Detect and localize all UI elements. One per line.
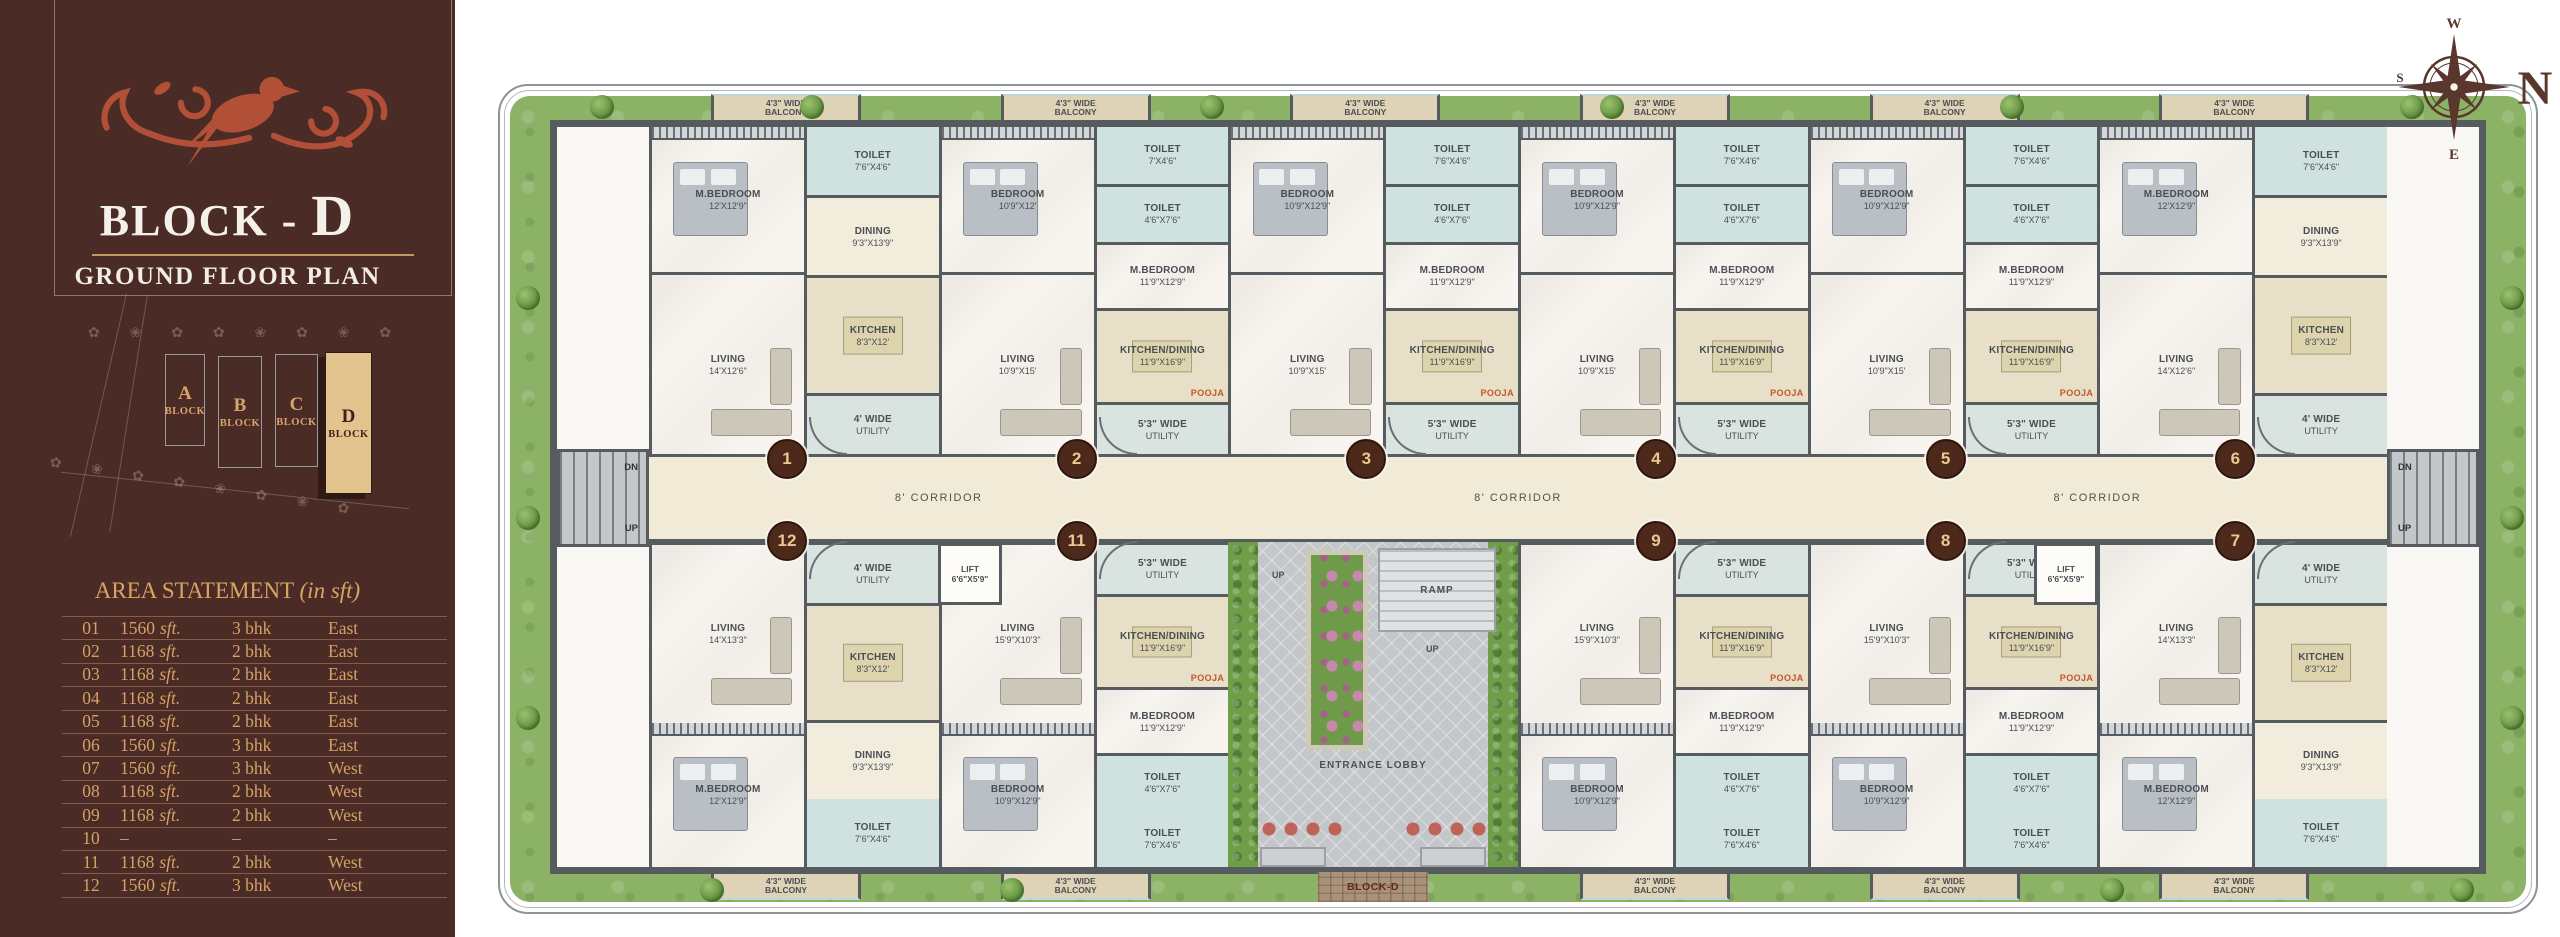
room-name: LIVING: [1580, 623, 1615, 634]
area-row-facing: East: [328, 735, 440, 756]
unit-12-right-col: TOILET7'6"X4'6"DINING9'3"X13'9"KITCHEN8'…: [804, 542, 939, 867]
room-name: M.BEDROOM: [1709, 711, 1774, 722]
unit-12-room-dining: DINING9'3"X13'9": [807, 720, 939, 799]
area-row-area: 1168sft.: [120, 852, 232, 873]
unit-11-room-bedroom: BEDROOM10'9"X12'9": [942, 723, 1094, 867]
room-name: KITCHEN: [850, 325, 896, 336]
room-dims: 11'9"X16'9": [1719, 643, 1764, 653]
room-name: 4' WIDE: [2302, 414, 2340, 425]
unit-9-room-bedroom: BEDROOM10'9"X12'9": [1521, 723, 1673, 867]
area-row-facing: West: [328, 781, 440, 802]
room-dims: 4'6"X7'6": [1724, 215, 1760, 225]
unit-5: BEDROOM10'9"X12'9"LIVING10'9"X15'TOILET7…: [1808, 127, 2098, 457]
lift-left: LIFT 6'6"X5'9": [938, 543, 1002, 605]
room-name: LIVING: [1000, 623, 1035, 634]
area-unit: sft.: [160, 758, 181, 778]
area-row-bhk: 2 bhk: [232, 781, 328, 802]
unit-12-room-bedroom: M.BEDROOM12'X12'9": [652, 723, 804, 867]
room-name: 5'3" WIDE: [1717, 558, 1766, 569]
unit-4-room-kitchen: POOJAKITCHEN/DINING11'9"X16'9": [1676, 308, 1808, 402]
unit-circle-1[interactable]: 1: [767, 439, 807, 479]
unit-circle-5[interactable]: 5: [1926, 439, 1966, 479]
room-name: TOILET: [2013, 828, 2050, 839]
room-dims: 14'X13'3": [2157, 635, 2195, 645]
area-row-bhk: –: [232, 828, 328, 849]
unit-circle-12[interactable]: 12: [767, 521, 807, 561]
area-value: 1168: [120, 664, 154, 684]
unit-circle-4[interactable]: 4: [1636, 439, 1676, 479]
area-value: 1168: [120, 688, 154, 708]
room-name: 5'3" WIDE: [1428, 419, 1477, 430]
unit-6-room-kitchen: KITCHEN8'3"X12': [2255, 275, 2387, 393]
unit-4-room-toilet2: TOILET4'6"X7'6": [1676, 184, 1808, 242]
room-dims: 9'3"X13'9": [2301, 762, 2342, 772]
unit-2-room-bedroom: BEDROOM10'9"X12': [942, 127, 1094, 272]
room-name: BEDROOM: [1860, 784, 1914, 795]
entrance-lobby-label: ENTRANCE LOBBY: [1228, 760, 1518, 771]
room-dims: UTILITY: [2304, 426, 2338, 436]
unit-5-room-bedroom2: M.BEDROOM11'9"X12'9": [1966, 242, 2098, 308]
room-name: LIVING: [1000, 354, 1035, 365]
area-unit: sft.: [159, 805, 180, 825]
unit-circle-11[interactable]: 11: [1057, 521, 1097, 561]
unit-7-room-living: LIVING14'X13'3": [2100, 542, 2252, 723]
sofa-icon: [1000, 678, 1081, 705]
unit-2-room-toilet: TOILET7'X4'6": [1097, 127, 1229, 184]
room-name: TOILET: [1724, 772, 1761, 783]
room-dims: 11'9"X12'9": [2009, 723, 2054, 733]
area-row-area: 1560sft.: [120, 735, 232, 756]
unit-11-room-bedroom2: M.BEDROOM11'9"X12'9": [1097, 687, 1229, 753]
unit-8-left-col: BEDROOM10'9"X12'9"LIVING15'9"X10'3": [1811, 542, 1963, 867]
room-name: KITCHEN: [2298, 652, 2344, 663]
room-dims: 4'6"X7'6": [1434, 215, 1470, 225]
area-row-area: 1168sft.: [120, 711, 232, 732]
room-name: KITCHEN: [850, 652, 896, 663]
unit-circle-8[interactable]: 8: [1926, 521, 1966, 561]
unit-2-room-bedroom2: M.BEDROOM11'9"X12'9": [1097, 242, 1229, 308]
site-block-letter: B: [234, 395, 247, 417]
up-label: UP: [1426, 644, 1439, 654]
shrub-bed-right: [1402, 817, 1488, 841]
area-table: 011560sft.3 bhkEast021168sft.2 bhkEast03…: [62, 616, 447, 898]
room-name: TOILET: [1724, 144, 1761, 155]
unit-6: M.BEDROOM12'X12'9"LIVING14'X12'6"TOILET7…: [2097, 127, 2387, 457]
area-row-bhk: 2 bhk: [232, 641, 328, 662]
room-dims: 10'9"X12'9": [995, 796, 1041, 806]
room-name: TOILET: [1144, 144, 1181, 155]
compass-s-label: S: [2396, 70, 2403, 85]
room-name: TOILET: [1434, 144, 1471, 155]
shrub-bed-left: [1258, 817, 1344, 841]
site-plan: ✿ ❀ ✿ ✿ ❀ ✿ ❀ ✿ ✿ ❀ ✿ ✿ ❀ ✿ ❀ ✿ ABLOCKBB…: [0, 300, 455, 570]
area-row-bhk: 2 bhk: [232, 688, 328, 709]
room-dims: UTILITY: [856, 575, 890, 585]
room-name: M.BEDROOM: [1709, 265, 1774, 276]
area-row-facing: East: [328, 688, 440, 709]
entry-step-right: [1420, 847, 1486, 867]
unit-circle-9[interactable]: 9: [1636, 521, 1676, 561]
area-value: 1168: [120, 711, 154, 731]
room-dims: 10'9"X12'9": [1864, 796, 1910, 806]
room-name: TOILET: [1434, 203, 1471, 214]
area-row-bhk: 3 bhk: [232, 735, 328, 756]
site-block-label: BLOCK: [220, 418, 260, 429]
room-dims: 10'9"X12'9": [1574, 201, 1620, 211]
unit-6-room-living: LIVING14'X12'6": [2100, 272, 2252, 454]
site-block-d[interactable]: DBLOCK: [325, 352, 372, 494]
room-dims: 11'9"X16'9": [2009, 643, 2054, 653]
room-dims: 14'X13'3": [709, 635, 747, 645]
unit-4-right-col: TOILET7'6"X4'6"TOILET4'6"X7'6"M.BEDROOM1…: [1673, 127, 1808, 454]
unit-6-room-toilet: TOILET7'6"X4'6": [2255, 127, 2387, 195]
room-name: TOILET: [1144, 203, 1181, 214]
unit-7-right-col: TOILET7'6"X4'6"DINING9'3"X13'9"KITCHEN8'…: [2252, 542, 2387, 867]
area-row-03: 031168sft.2 bhkEast: [62, 664, 447, 687]
room-dims: 10'9"X15': [1578, 366, 1616, 376]
unit-1-room-bedroom: M.BEDROOM12'X12'9": [652, 127, 804, 272]
unit-9: BEDROOM10'9"X12'9"LIVING15'9"X10'3"TOILE…: [1518, 539, 1808, 867]
room-name: KITCHEN/DINING: [1410, 345, 1495, 356]
site-block-label: BLOCK: [165, 406, 205, 417]
unit-9-left-col: BEDROOM10'9"X12'9"LIVING15'9"X10'3": [1521, 542, 1673, 867]
unit-circle-2[interactable]: 2: [1057, 439, 1097, 479]
area-value: 1168: [120, 852, 154, 872]
room-dims: 7'6"X4'6": [1434, 156, 1470, 166]
room-name: BEDROOM: [1281, 189, 1335, 200]
unit-6-room-dining: DINING9'3"X13'9": [2255, 195, 2387, 275]
unit-7-room-toilet: TOILET7'6"X4'6": [2255, 799, 2387, 867]
room-dims: 4'6"X7'6": [2014, 215, 2050, 225]
pooja-label: POOJA: [2060, 673, 2094, 683]
site-block-label: BLOCK: [328, 429, 368, 440]
room-dims: 15'9"X10'3": [995, 635, 1041, 645]
room-dims: 12'X12'9": [709, 796, 747, 806]
wardrobe-icon: [2100, 127, 2252, 140]
unit-12-room-kitchen: KITCHEN8'3"X12': [807, 603, 939, 720]
unit-7-left-col: M.BEDROOM12'X12'9"LIVING14'X13'3": [2100, 542, 2252, 867]
room-name: M.BEDROOM: [695, 189, 760, 200]
unit-3-left-col: BEDROOM10'9"X12'9"LIVING10'9"X15': [1231, 127, 1383, 454]
area-row-bhk: 3 bhk: [232, 875, 328, 896]
area-row-04: 041168sft.2 bhkEast: [62, 687, 447, 710]
unit-7-room-dining: DINING9'3"X13'9": [2255, 720, 2387, 799]
room-dims: UTILITY: [2304, 575, 2338, 585]
sofa-icon: [2159, 678, 2240, 705]
unit-1-left-col: M.BEDROOM12'X12'9"LIVING14'X12'6": [652, 127, 804, 454]
unit-8-room-toilet2: TOILET4'6"X7'6": [1966, 753, 2098, 811]
room-dims: 12'X12'9": [709, 201, 747, 211]
area-row-facing: East: [328, 664, 440, 685]
room-name: LIVING: [2159, 623, 2194, 634]
unit-5-room-bedroom: BEDROOM10'9"X12'9": [1811, 127, 1963, 272]
unit-4-room-bedroom2: M.BEDROOM11'9"X12'9": [1676, 242, 1808, 308]
dining-table-icon: [2291, 316, 2351, 355]
area-row-bhk: 2 bhk: [232, 664, 328, 685]
room-name: KITCHEN/DINING: [1699, 631, 1784, 642]
unit-5-room-toilet2: TOILET4'6"X7'6": [1966, 184, 2098, 242]
room-dims: 10'9"X15': [1288, 366, 1326, 376]
room-name: BEDROOM: [991, 189, 1045, 200]
stair-up-label: UP: [625, 523, 638, 534]
room-dims: 11'9"X12'9": [1719, 723, 1764, 733]
area-row-facing: East: [328, 711, 440, 732]
room-name: DINING: [855, 750, 891, 761]
corridor-label: 8' CORRIDOR: [1474, 492, 1562, 504]
building: 8' CORRIDOR 8' CORRIDOR 8' CORRIDOR DN U…: [550, 120, 2486, 874]
room-dims: 9'3"X13'9": [852, 238, 893, 248]
room-dims: UTILITY: [1725, 431, 1759, 441]
floor-plan: 8' CORRIDOR 8' CORRIDOR 8' CORRIDOR DN U…: [498, 84, 2538, 914]
room-dims: 8'3"X12': [2305, 337, 2338, 347]
corridor: 8' CORRIDOR 8' CORRIDOR 8' CORRIDOR: [649, 457, 2387, 539]
room-dims: 14'X12'6": [709, 366, 747, 376]
unit-5-left-col: BEDROOM10'9"X12'9"LIVING10'9"X15': [1811, 127, 1963, 454]
sofa-icon: [1000, 409, 1081, 436]
wardrobe-icon: [1811, 723, 1963, 736]
area-row-no: 10: [62, 828, 120, 849]
room-name: M.BEDROOM: [2144, 189, 2209, 200]
unit-4-room-bedroom: BEDROOM10'9"X12'9": [1521, 127, 1673, 272]
area-row-bhk: 2 bhk: [232, 805, 328, 826]
room-dims: 12'X12'9": [2157, 201, 2195, 211]
room-name: BEDROOM: [1570, 784, 1624, 795]
room-dims: 7'6"X4'6": [855, 834, 891, 844]
wardrobe-icon: [2100, 723, 2252, 736]
room-dims: 10'9"X15': [999, 366, 1037, 376]
unit-4-room-toilet: TOILET7'6"X4'6": [1676, 127, 1808, 184]
room-name: TOILET: [2013, 144, 2050, 155]
unit-3: BEDROOM10'9"X12'9"LIVING10'9"X15'TOILET7…: [1228, 127, 1518, 457]
unit-9-room-toilet2: TOILET4'6"X7'6": [1676, 753, 1808, 811]
unit-12: M.BEDROOM12'X12'9"LIVING14'X13'3"TOILET7…: [649, 539, 939, 867]
unit-5-room-toilet: TOILET7'6"X4'6": [1966, 127, 2098, 184]
room-name: M.BEDROOM: [2144, 784, 2209, 795]
pooja-label: POOJA: [2060, 388, 2094, 398]
area-row-no: 09: [62, 805, 120, 826]
staircase-left: DN UP: [557, 449, 649, 547]
area-row-08: 081168sft.2 bhkWest: [62, 781, 447, 804]
site-block-a[interactable]: ABLOCK: [165, 354, 205, 446]
staircase-right: DN UP: [2387, 449, 2479, 547]
unit-8-room-bedroom: BEDROOM10'9"X12'9": [1811, 723, 1963, 867]
unit-9-room-toilet: TOILET7'6"X4'6": [1676, 811, 1808, 867]
area-row-no: 04: [62, 688, 120, 709]
unit-2: BEDROOM10'9"X12'LIVING10'9"X15'TOILET7'X…: [939, 127, 1229, 457]
room-name: M.BEDROOM: [1130, 711, 1195, 722]
unit-2-room-toilet2: TOILET4'6"X7'6": [1097, 184, 1229, 242]
unit-12-room-living: LIVING14'X13'3": [652, 542, 804, 723]
room-dims: 7'6"X4'6": [855, 162, 891, 172]
room-name: 5'3" WIDE: [1138, 419, 1187, 430]
area-row-bhk: 3 bhk: [232, 618, 328, 639]
room-dims: 15'9"X10'3": [1574, 635, 1620, 645]
ramp-label: RAMP: [1420, 585, 1453, 596]
room-name: TOILET: [855, 150, 892, 161]
room-dims: 7'6"X4'6": [2014, 156, 2050, 166]
brand-bird-logo: [90, 40, 400, 180]
page-title-prefix: BLOCK -: [100, 196, 312, 245]
entry-step-left: [1260, 847, 1326, 867]
sofa-icon: [1290, 409, 1371, 436]
area-row-09: 091168sft.2 bhkWest: [62, 804, 447, 827]
hedge-left: [1228, 542, 1258, 867]
room-name: DINING: [855, 226, 891, 237]
unit-11-room-toilet: TOILET7'6"X4'6": [1097, 811, 1229, 867]
area-row-12: 121560sft.3 bhkWest: [62, 874, 447, 897]
unit-2-room-kitchen: POOJAKITCHEN/DINING11'9"X16'9": [1097, 308, 1229, 402]
room-dims: UTILITY: [1146, 431, 1180, 441]
dining-table-icon: [2291, 643, 2351, 681]
room-name: LIVING: [2159, 354, 2194, 365]
room-dims: 11'9"X12'9": [1140, 723, 1185, 733]
compass-n-label: N: [2518, 62, 2553, 115]
room-dims: 7'6"X4'6": [2303, 162, 2339, 172]
site-block-letter: C: [290, 394, 304, 416]
room-dims: 14'X12'6": [2157, 366, 2195, 376]
ramp: RAMP: [1378, 548, 1496, 632]
area-row-facing: –: [328, 828, 440, 849]
pooja-label: POOJA: [1770, 388, 1804, 398]
area-row-facing: West: [328, 805, 440, 826]
room-name: 5'3" WIDE: [1717, 419, 1766, 430]
room-name: LIVING: [1290, 354, 1325, 365]
wardrobe-icon: [652, 127, 804, 140]
pooja-label: POOJA: [1770, 673, 1804, 683]
room-dims: 10'9"X12': [999, 201, 1037, 211]
unit-4: BEDROOM10'9"X12'9"LIVING10'9"X15'TOILET7…: [1518, 127, 1808, 457]
area-value: 1560: [120, 875, 155, 895]
area-value: 1168: [120, 641, 154, 661]
room-name: TOILET: [1724, 828, 1761, 839]
corridor-label: 8' CORRIDOR: [895, 492, 983, 504]
stair-dn-label: DN: [2398, 462, 2412, 473]
wardrobe-icon: [1521, 127, 1673, 140]
site-block-b[interactable]: BBLOCK: [218, 356, 262, 468]
unit-4-left-col: BEDROOM10'9"X12'9"LIVING10'9"X15': [1521, 127, 1673, 454]
area-row-10: 10–––: [62, 828, 447, 851]
room-name: M.BEDROOM: [1999, 711, 2064, 722]
stair-dn-label: DN: [624, 462, 638, 473]
room-dims: 11'9"X16'9": [2009, 357, 2054, 367]
room-dims: 8'3"X12': [857, 664, 890, 674]
room-dims: UTILITY: [856, 426, 890, 436]
unit-12-left-col: M.BEDROOM12'X12'9"LIVING14'X13'3": [652, 542, 804, 867]
unit-3-room-living: LIVING10'9"X15': [1231, 272, 1383, 454]
pooja-label: POOJA: [1191, 388, 1225, 398]
title-divider: [92, 254, 414, 256]
landscape-band: 8' CORRIDOR 8' CORRIDOR 8' CORRIDOR DN U…: [510, 96, 2526, 902]
lift-dims: 6'6"X5'9": [952, 574, 989, 584]
unit-9-right-col: TOILET7'6"X4'6"TOILET4'6"X7'6"M.BEDROOM1…: [1673, 542, 1808, 867]
compass-e-label: E: [2449, 147, 2459, 162]
sofa-icon: [711, 409, 792, 436]
dining-table-icon: [843, 316, 903, 355]
unit-11-room-kitchen: POOJAKITCHEN/DINING11'9"X16'9": [1097, 594, 1229, 688]
area-statement: AREA STATEMENT (in sft) 011560sft.3 bhkE…: [0, 568, 455, 898]
room-name: KITCHEN/DINING: [1989, 345, 2074, 356]
room-dims: 11'9"X12'9": [1430, 277, 1475, 287]
room-name: BEDROOM: [1570, 189, 1624, 200]
site-block-c[interactable]: CBLOCK: [275, 354, 318, 467]
unit-6-room-bedroom: M.BEDROOM12'X12'9": [2100, 127, 2252, 272]
unit-3-room-bedroom2: M.BEDROOM11'9"X12'9": [1386, 242, 1518, 308]
area-row-area: –: [120, 828, 232, 849]
wardrobe-icon: [1811, 127, 1963, 140]
room-name: TOILET: [1144, 772, 1181, 783]
unit-3-room-toilet: TOILET7'6"X4'6": [1386, 127, 1518, 184]
sofa-icon: [1869, 678, 1950, 705]
room-name: TOILET: [2303, 150, 2340, 161]
area-row-02: 021168sft.2 bhkEast: [62, 640, 447, 663]
corridor-label: 8' CORRIDOR: [2053, 492, 2141, 504]
area-row-no: 05: [62, 711, 120, 732]
room-dims: 11'9"X12'9": [1719, 277, 1764, 287]
sofa-icon: [2159, 409, 2240, 436]
unit-11-right-col: TOILET7'6"X4'6"TOILET4'6"X7'6"M.BEDROOM1…: [1094, 542, 1229, 867]
area-row-no: 07: [62, 758, 120, 779]
unit-9-room-living: LIVING15'9"X10'3": [1521, 542, 1673, 723]
unit-5-room-living: LIVING10'9"X15': [1811, 272, 1963, 454]
room-name: 4' WIDE: [854, 563, 892, 574]
room-dims: 7'6"X4'6": [1724, 156, 1760, 166]
room-dims: 7'6"X4'6": [1724, 840, 1760, 850]
room-name: TOILET: [2303, 822, 2340, 833]
area-row-11: 111168sft.2 bhkWest: [62, 851, 447, 874]
room-dims: 4'6"X7'6": [1145, 784, 1181, 794]
unit-8-room-living: LIVING15'9"X10'3": [1811, 542, 1963, 723]
room-name: KITCHEN/DINING: [1699, 345, 1784, 356]
unit-8-room-toilet: TOILET7'6"X4'6": [1966, 811, 2098, 867]
area-unit: sft.: [160, 735, 181, 755]
area-row-no: 12: [62, 875, 120, 896]
room-name: BEDROOM: [1860, 189, 1914, 200]
unit-11-room-toilet2: TOILET4'6"X7'6": [1097, 753, 1229, 811]
room-name: LIVING: [1869, 623, 1904, 634]
area-row-06: 061560sft.3 bhkEast: [62, 734, 447, 757]
dining-table-icon: [843, 643, 903, 681]
stair-up-label: UP: [2398, 523, 2411, 534]
unit-1-room-dining: DINING9'3"X13'9": [807, 195, 939, 275]
room-dims: 7'6"X4'6": [2014, 840, 2050, 850]
room-name: LIVING: [711, 623, 746, 634]
room-name: 5'3" WIDE: [2007, 419, 2056, 430]
unit-4-room-living: LIVING10'9"X15': [1521, 272, 1673, 454]
area-row-area: 1168sft.: [120, 805, 232, 826]
room-dims: 4'6"X7'6": [2014, 784, 2050, 794]
room-name: 4' WIDE: [2302, 563, 2340, 574]
room-dims: 7'6"X4'6": [1145, 840, 1181, 850]
sidebar: BLOCK - D GROUND FLOOR PLAN ✿ ❀ ✿ ✿ ❀ ✿ …: [0, 0, 455, 937]
room-name: BEDROOM: [991, 784, 1045, 795]
area-row-bhk: 2 bhk: [232, 852, 328, 873]
unit-1: M.BEDROOM12'X12'9"LIVING14'X12'6"TOILET7…: [649, 127, 939, 457]
room-dims: 8'3"X12': [857, 337, 890, 347]
wardrobe-icon: [652, 723, 804, 736]
room-name: M.BEDROOM: [1999, 265, 2064, 276]
area-statement-title-note: (in sft): [300, 578, 361, 603]
room-dims: 15'9"X10'3": [1864, 635, 1910, 645]
room-dims: 11'9"X16'9": [1430, 357, 1475, 367]
area-row-area: 1560sft.: [120, 875, 232, 896]
room-name: TOILET: [2013, 772, 2050, 783]
unit-1-right-col: TOILET7'6"X4'6"DINING9'3"X13'9"KITCHEN8'…: [804, 127, 939, 454]
area-unit: sft.: [159, 641, 180, 661]
unit-2-room-living: LIVING10'9"X15': [942, 272, 1094, 454]
unit-8-room-kitchen: POOJAKITCHEN/DINING11'9"X16'9": [1966, 594, 2098, 688]
room-dims: 9'3"X13'9": [2301, 238, 2342, 248]
room-name: M.BEDROOM: [695, 784, 760, 795]
